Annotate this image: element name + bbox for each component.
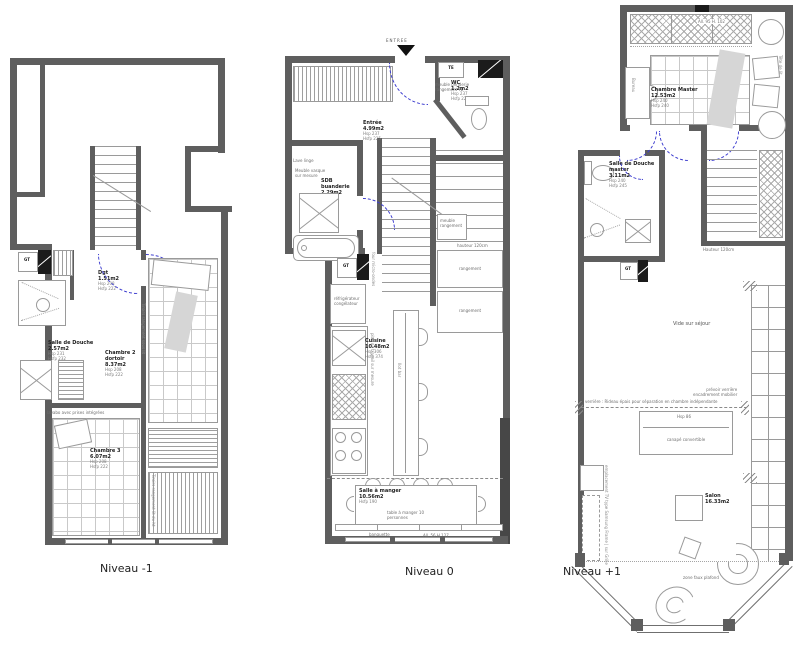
stool — [419, 383, 428, 401]
wall — [357, 140, 363, 196]
height-note: hauteur 120cm — [457, 243, 488, 248]
window — [65, 539, 213, 544]
level-caption-minus1: Niveau -1 — [100, 562, 153, 575]
wardrobe — [630, 14, 752, 44]
window-mullion — [440, 536, 445, 544]
floorplan-level-0: ENTREE TE meuble penderie rangement TE W… — [285, 38, 513, 553]
wall-mark — [695, 5, 709, 12]
wall — [285, 140, 363, 146]
bathtub-drain — [301, 245, 307, 251]
wall — [221, 206, 228, 545]
armchair — [649, 579, 702, 630]
toilet-bowl — [471, 108, 487, 130]
ceiling-note: zone faux plafond — [683, 575, 719, 580]
cabinet — [53, 250, 73, 276]
window-post — [723, 619, 735, 631]
stair-stringer — [751, 285, 752, 561]
washer — [299, 193, 339, 233]
floor-plan-sheet: GT Salle de Douche 2.57m2 Hsp 231 Hsfp 2… — [0, 0, 800, 647]
oven-note: four micro-ondes — [371, 252, 376, 296]
wall — [578, 150, 620, 156]
wall — [218, 58, 225, 153]
gt-label: GT — [343, 264, 349, 269]
staircase — [707, 150, 757, 240]
toilet-tank — [465, 96, 489, 106]
wardrobe — [293, 66, 393, 102]
burner — [351, 432, 362, 443]
burner — [351, 450, 362, 461]
door-arc — [389, 63, 428, 105]
chair — [346, 496, 354, 512]
window — [345, 537, 493, 542]
sofa-label: canapé convertible — [639, 437, 733, 442]
sofa-height-note: Hsp 86 — [677, 414, 691, 419]
room-label-salle-de-douche: Salle de Douche 2.57m2 Hsp 231 Hsfp 232 — [48, 340, 93, 362]
drawers-note: Tiroirs rangement sous lit — [141, 303, 146, 413]
break-mark — [741, 401, 749, 415]
tv-unit — [580, 465, 604, 491]
storage-note: meuble rangement — [440, 218, 462, 228]
partition-note: prévoir verrière encadrement mobilier — [693, 387, 737, 397]
kitchen-island — [393, 310, 419, 476]
shower-spray-line — [585, 198, 620, 219]
stair-wall — [136, 146, 141, 250]
stool — [419, 438, 428, 456]
break-mark — [743, 473, 757, 483]
lave-linge-note: Lave linge — [293, 158, 314, 163]
break-mark — [743, 281, 757, 291]
toilet-tank — [584, 161, 592, 185]
side-table — [758, 111, 786, 139]
small-table — [678, 536, 701, 559]
room-label-chambre2: Chambre 2 dortoir 8.37m2 Hsp 208 Hsfp 22… — [105, 350, 135, 378]
tv-zone — [582, 495, 600, 561]
room-label-salle-a-manger: Salle à manger 10.56m2 Hsfp 190 — [359, 488, 401, 505]
gt-label: GT — [625, 267, 631, 272]
island-divider — [405, 313, 406, 473]
armchair — [717, 543, 759, 585]
sink — [625, 219, 651, 243]
window-post — [631, 619, 643, 631]
burner — [335, 432, 346, 443]
room-label-salon: Salon 16.33m2 — [705, 493, 730, 505]
closet — [759, 150, 783, 238]
bench-divider — [377, 524, 378, 531]
window-post — [779, 553, 789, 565]
floorplan-level-plus1: All. 95 H. 102 Bureau Chambre Master 12.… — [575, 3, 798, 645]
side-table-square — [675, 495, 703, 521]
window-mullion — [390, 536, 395, 544]
vasque-note: Meuble vasque sur mesure — [295, 168, 325, 178]
wall — [10, 58, 225, 65]
gt-label: GT — [24, 258, 30, 263]
duct-wedge — [638, 260, 648, 282]
wall — [185, 146, 225, 152]
pillow — [752, 84, 780, 109]
break-line — [630, 46, 752, 47]
level-caption-0: Niveau 0 — [405, 565, 454, 578]
duct-wedge — [38, 250, 51, 274]
shower-tray — [20, 360, 52, 400]
sofa-back-line — [643, 427, 729, 428]
burner — [335, 450, 346, 461]
void-label: Vide sur séjour — [673, 321, 710, 327]
armchair-opening — [714, 540, 736, 562]
sill-note: All. 95 H. 102 — [697, 19, 726, 24]
lavabo-note: lavabo avec prises intégrées — [47, 410, 104, 415]
bay-window — [637, 625, 729, 633]
entrance-arrow-icon — [397, 45, 415, 56]
headboard-note: Tête de lit — [778, 55, 783, 101]
bench-divider — [419, 524, 420, 531]
radiator — [58, 360, 84, 400]
tv-note: emplacement TV type Samsung Frame | sur … — [604, 465, 609, 575]
wall — [185, 146, 191, 212]
wall — [45, 403, 141, 408]
shelving — [148, 472, 218, 534]
height-note: Hauteur 120cm — [703, 247, 734, 252]
room-label-entree: Entrée 4.99m2 Hsp 237 Hsfp 225 — [363, 120, 384, 142]
shower-drain — [36, 298, 50, 312]
room-label-chambre-master: Chambre Master 12.53m2 Hsp 240 Hsfp 240 — [651, 87, 698, 109]
window-mullion — [108, 538, 112, 545]
kitchen-sink — [332, 330, 366, 366]
separation-dash-line — [581, 407, 747, 408]
drawers-note: Tiroirs rangement lit du ht — [151, 474, 156, 532]
pillow — [752, 56, 780, 81]
desk-label: Bureau — [631, 78, 636, 108]
wall — [785, 5, 793, 561]
entrance-arrow-label: ENTREE — [386, 38, 408, 43]
wall — [659, 156, 665, 256]
staircase-up — [382, 138, 430, 294]
curtain-note: verrière : Rideau épais pour séparation … — [585, 399, 718, 404]
fridge-label: réfrigérateur congélateur — [334, 296, 360, 306]
side-table — [758, 19, 784, 45]
island-label: Ilot bar — [397, 363, 402, 393]
level-caption-plus1: Niveau +1 — [563, 565, 621, 578]
bench-divider — [461, 524, 462, 531]
room-label-cuisine: Cuisine 10.48m2 Hsp 306 Hsfp 374 — [365, 338, 390, 360]
storage-label: rangement — [437, 308, 503, 313]
wall — [40, 65, 45, 197]
stair-rail — [768, 285, 769, 561]
wall-diagonal — [433, 98, 466, 139]
chair — [478, 496, 486, 512]
zone-dot-line — [581, 561, 783, 562]
wall — [701, 241, 785, 246]
wall — [10, 58, 17, 250]
duct-wedge — [357, 254, 369, 280]
table-note: table à manger 10 personnes — [387, 510, 424, 520]
desk — [625, 67, 650, 119]
room-label-chambre3: Chambre 3 6.07m2 Hsp 208 Hsfp 222 — [90, 448, 120, 470]
storage-label: rangement — [437, 266, 503, 271]
floorplan-level-minus1: GT Salle de Douche 2.57m2 Hsp 231 Hsfp 2… — [10, 58, 235, 558]
wardrobe-divider — [671, 14, 672, 44]
counter-hatch — [332, 374, 366, 420]
window-mullion — [155, 538, 159, 545]
drawers — [148, 428, 218, 468]
break-mark — [575, 401, 583, 415]
wall — [285, 56, 395, 63]
te-label: TE — [438, 66, 464, 71]
meter-box — [478, 60, 503, 78]
wall — [285, 56, 292, 254]
wall — [10, 192, 45, 197]
stool — [419, 328, 428, 346]
